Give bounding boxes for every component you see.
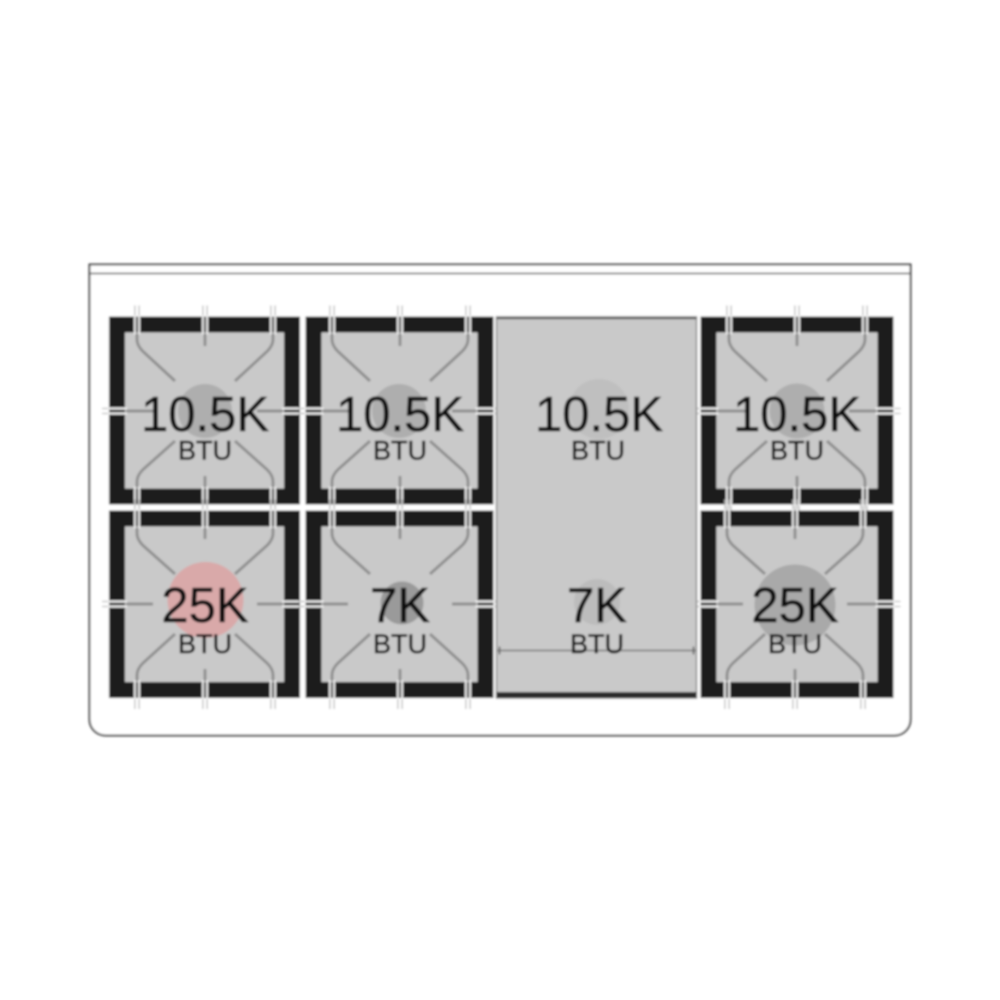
svg-text:25K: 25K	[751, 579, 839, 633]
svg-text:25K: 25K	[161, 579, 249, 633]
svg-text:10.5K: 10.5K	[141, 388, 269, 442]
svg-text:10.5K: 10.5K	[733, 388, 861, 442]
svg-text:BTU: BTU	[373, 436, 427, 466]
svg-text:BTU: BTU	[178, 629, 232, 659]
svg-text:10.5K: 10.5K	[535, 388, 663, 442]
svg-text:BTU: BTU	[570, 629, 624, 659]
svg-text:BTU: BTU	[770, 436, 824, 466]
svg-text:7K: 7K	[370, 579, 430, 633]
svg-text:BTU: BTU	[373, 629, 427, 659]
svg-text:10.5K: 10.5K	[336, 388, 464, 442]
svg-text:BTU: BTU	[178, 436, 232, 466]
svg-text:BTU: BTU	[571, 436, 625, 466]
svg-text:BTU: BTU	[768, 629, 822, 659]
svg-text:7K: 7K	[567, 579, 627, 633]
